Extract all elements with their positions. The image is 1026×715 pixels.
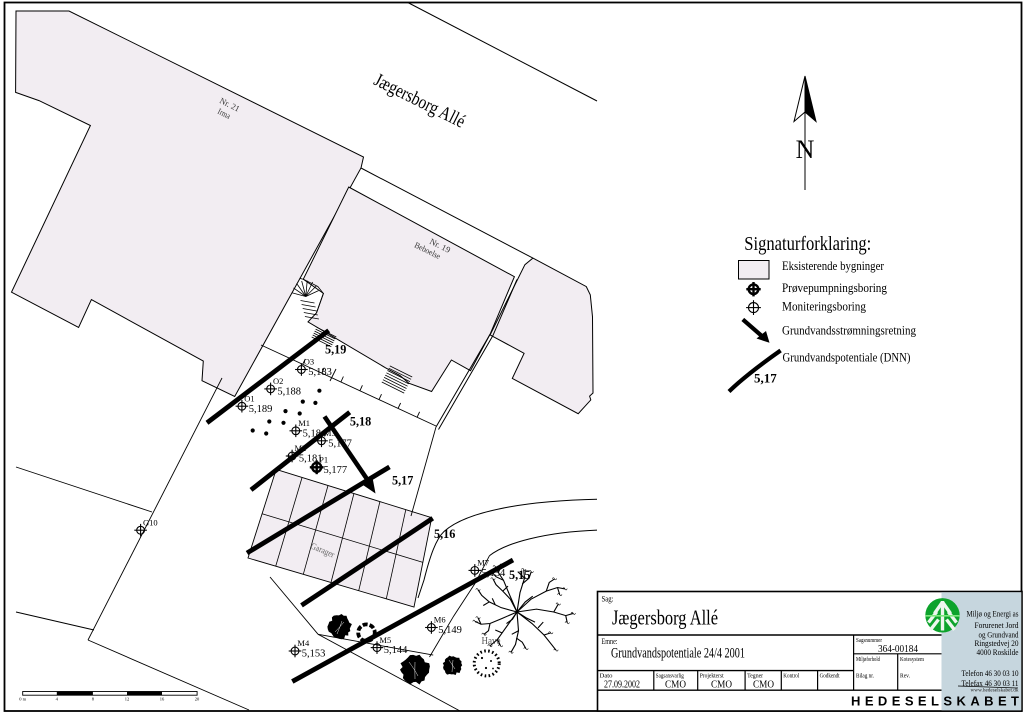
svg-text:M6: M6: [434, 615, 446, 625]
svg-text:CMO: CMO: [665, 679, 686, 691]
svg-text:Signaturforklaring:: Signaturforklaring:: [744, 233, 871, 255]
svg-text:5,153: 5,153: [302, 649, 326, 660]
svg-text:5,177: 5,177: [324, 465, 348, 476]
svg-text:5,19: 5,19: [325, 343, 346, 357]
svg-text:G10: G10: [143, 517, 158, 527]
svg-text:CMO: CMO: [753, 679, 774, 691]
svg-text:M3: M3: [324, 428, 336, 438]
svg-text:Moniteringsboring: Moniteringsboring: [782, 298, 866, 313]
svg-text:Godkendt: Godkendt: [820, 673, 840, 680]
svg-text:5,16: 5,16: [434, 527, 455, 541]
svg-text:M4: M4: [297, 638, 310, 648]
svg-text:5,18: 5,18: [350, 415, 371, 429]
svg-text:Grundvandsstrømningsretning: Grundvandsstrømningsretning: [782, 323, 916, 338]
svg-text:N: N: [796, 135, 815, 164]
svg-text:M2: M2: [295, 443, 307, 453]
svg-text:Bilag nr.: Bilag nr.: [856, 673, 874, 680]
svg-text:Miljø og Energi as: Miljø og Energi as: [967, 608, 1020, 618]
svg-text:16: 16: [160, 697, 165, 702]
svg-text:Kontrol: Kontrol: [783, 673, 799, 680]
svg-text:P1: P1: [319, 455, 328, 465]
svg-text:0 m: 0 m: [19, 697, 26, 702]
svg-text:Rev.: Rev.: [900, 673, 910, 680]
svg-text:5,149: 5,149: [438, 625, 462, 636]
svg-text:364-00184: 364-00184: [878, 644, 919, 655]
svg-text:5,189: 5,189: [249, 404, 273, 415]
svg-text:O2: O2: [273, 376, 283, 386]
svg-text:12: 12: [125, 697, 130, 702]
svg-text:Sag:: Sag:: [602, 595, 614, 604]
svg-text:Prøvepumpningsboring: Prøvepumpningsboring: [782, 280, 887, 295]
svg-text:5,17: 5,17: [392, 474, 413, 488]
svg-text:M7: M7: [477, 558, 489, 568]
svg-text:5,177: 5,177: [328, 438, 352, 449]
svg-text:5,188: 5,188: [277, 387, 301, 398]
svg-text:5,17: 5,17: [754, 371, 777, 386]
svg-text:O3: O3: [304, 357, 314, 367]
svg-text:Grundvandspotentiale (DNN): Grundvandspotentiale (DNN): [783, 349, 911, 364]
svg-text:Kotesystem: Kotesystem: [900, 656, 924, 663]
svg-text:Miljøforhold: Miljøforhold: [856, 656, 881, 663]
svg-text:4000 Roskilde: 4000 Roskilde: [977, 647, 1019, 657]
svg-text:O1: O1: [244, 393, 254, 403]
svg-text:Grundvandspotentiale 24/4 2001: Grundvandspotentiale 24/4 2001: [611, 646, 745, 662]
svg-text:20: 20: [195, 697, 200, 702]
svg-text:Sagsnummer: Sagsnummer: [856, 637, 883, 644]
svg-text:Eksisterende bygninger: Eksisterende bygninger: [782, 258, 885, 273]
svg-text:M1: M1: [298, 418, 310, 428]
svg-text:Telefon 46 30 03 10: Telefon 46 30 03 10: [962, 668, 1019, 678]
svg-text:M5: M5: [379, 635, 391, 645]
svg-text:5,183: 5,183: [308, 367, 332, 378]
svg-text:CMO: CMO: [711, 679, 732, 691]
svg-text:27.09.2002: 27.09.2002: [604, 679, 640, 691]
svg-text:5,144: 5,144: [384, 645, 408, 656]
svg-text:Jægersborg Allé: Jægersborg Allé: [612, 606, 718, 630]
